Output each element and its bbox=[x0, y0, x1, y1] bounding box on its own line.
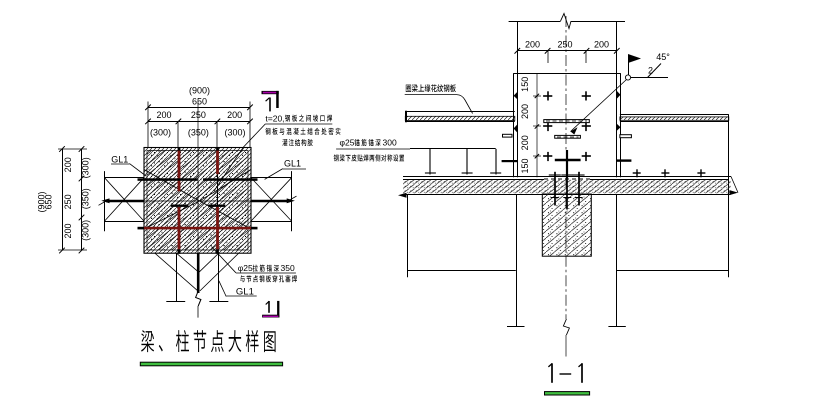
svg-text:(300): (300) bbox=[81, 220, 91, 241]
svg-text:650: 650 bbox=[44, 194, 54, 209]
svg-text:(350): (350) bbox=[81, 188, 91, 209]
svg-text:150: 150 bbox=[520, 158, 530, 173]
svg-text:φ25: φ25 bbox=[238, 263, 253, 273]
svg-text:GL1: GL1 bbox=[111, 154, 128, 164]
svg-text:250: 250 bbox=[191, 110, 206, 120]
svg-text:300: 300 bbox=[383, 138, 397, 148]
svg-text:650: 650 bbox=[192, 97, 207, 107]
svg-text:200: 200 bbox=[227, 110, 242, 120]
svg-text:t=20,: t=20, bbox=[265, 113, 284, 123]
svg-text:350: 350 bbox=[281, 263, 295, 273]
svg-text:200: 200 bbox=[525, 39, 540, 49]
svg-text:GL1: GL1 bbox=[284, 159, 301, 169]
svg-text:150: 150 bbox=[520, 77, 530, 92]
svg-text:200: 200 bbox=[520, 104, 530, 119]
svg-text:200: 200 bbox=[520, 135, 530, 150]
svg-text:(300): (300) bbox=[224, 127, 245, 137]
svg-text:(900): (900) bbox=[189, 86, 210, 96]
svg-text:250: 250 bbox=[63, 194, 73, 209]
svg-text:250: 250 bbox=[557, 39, 572, 49]
svg-text:200: 200 bbox=[63, 223, 73, 238]
svg-text:45°: 45° bbox=[656, 52, 670, 62]
svg-text:(300): (300) bbox=[150, 127, 171, 137]
svg-text:φ25: φ25 bbox=[340, 138, 355, 148]
svg-text:200: 200 bbox=[594, 39, 609, 49]
svg-text:(300): (300) bbox=[81, 157, 91, 178]
svg-text:200: 200 bbox=[156, 110, 171, 120]
svg-text:200: 200 bbox=[63, 157, 73, 172]
svg-text:2: 2 bbox=[648, 66, 653, 76]
svg-text:(350): (350) bbox=[188, 127, 209, 137]
